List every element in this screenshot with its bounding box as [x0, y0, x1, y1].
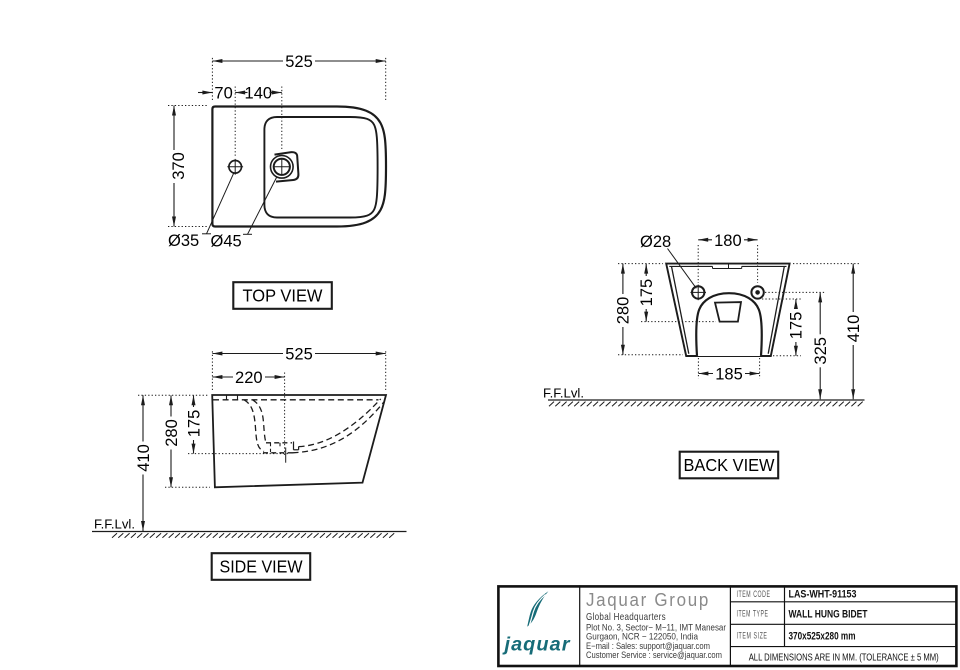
svg-text:180: 180	[714, 232, 742, 250]
svg-text:WALL HUNG BIDET: WALL HUNG BIDET	[789, 609, 868, 621]
svg-text:410: 410	[845, 315, 863, 343]
svg-text:BACK VIEW: BACK VIEW	[684, 455, 775, 475]
svg-text:F.F.Lvl.: F.F.Lvl.	[543, 387, 584, 401]
svg-text:Ø28: Ø28	[640, 233, 671, 251]
svg-text:175: 175	[638, 279, 656, 307]
svg-text:SIDE VIEW: SIDE VIEW	[220, 557, 303, 577]
svg-text:ITEM SIZE: ITEM SIZE	[737, 631, 768, 642]
svg-text:ALL DIMENSIONS ARE IN MM. (TOL: ALL DIMENSIONS ARE IN MM. (TOLERANCE ± 5…	[749, 652, 939, 663]
svg-text:525: 525	[285, 346, 313, 364]
svg-text:175: 175	[788, 312, 806, 340]
svg-text:280: 280	[615, 297, 633, 325]
svg-text:410: 410	[135, 444, 153, 472]
svg-text:140: 140	[245, 85, 273, 103]
svg-text:Ø45: Ø45	[211, 233, 242, 251]
svg-text:70: 70	[214, 85, 232, 103]
svg-text:jaquar: jaquar	[501, 635, 571, 656]
svg-text:F.F.Lvl.: F.F.Lvl.	[94, 518, 135, 532]
svg-text:Global Headquarters: Global Headquarters	[586, 611, 666, 623]
svg-text:TOP VIEW: TOP VIEW	[243, 286, 323, 306]
svg-text:ITEM CODE: ITEM CODE	[737, 589, 771, 600]
svg-text:220: 220	[235, 369, 263, 387]
svg-text:175: 175	[185, 410, 203, 438]
svg-text:Jaquar Group: Jaquar Group	[586, 590, 710, 610]
svg-text:185: 185	[715, 366, 743, 384]
svg-text:280: 280	[163, 419, 181, 447]
svg-text:Customer Service : service@jaq: Customer Service : service@jaquar.com	[586, 650, 722, 660]
svg-text:370: 370	[170, 152, 188, 180]
svg-text:ITEM TYPE: ITEM TYPE	[737, 609, 769, 620]
svg-text:LAS-WHT-91153: LAS-WHT-91153	[789, 589, 857, 601]
svg-text:Ø35: Ø35	[168, 232, 199, 250]
svg-text:525: 525	[285, 53, 313, 71]
svg-text:325: 325	[812, 337, 830, 365]
svg-text:370x525x280 mm: 370x525x280 mm	[789, 631, 856, 643]
